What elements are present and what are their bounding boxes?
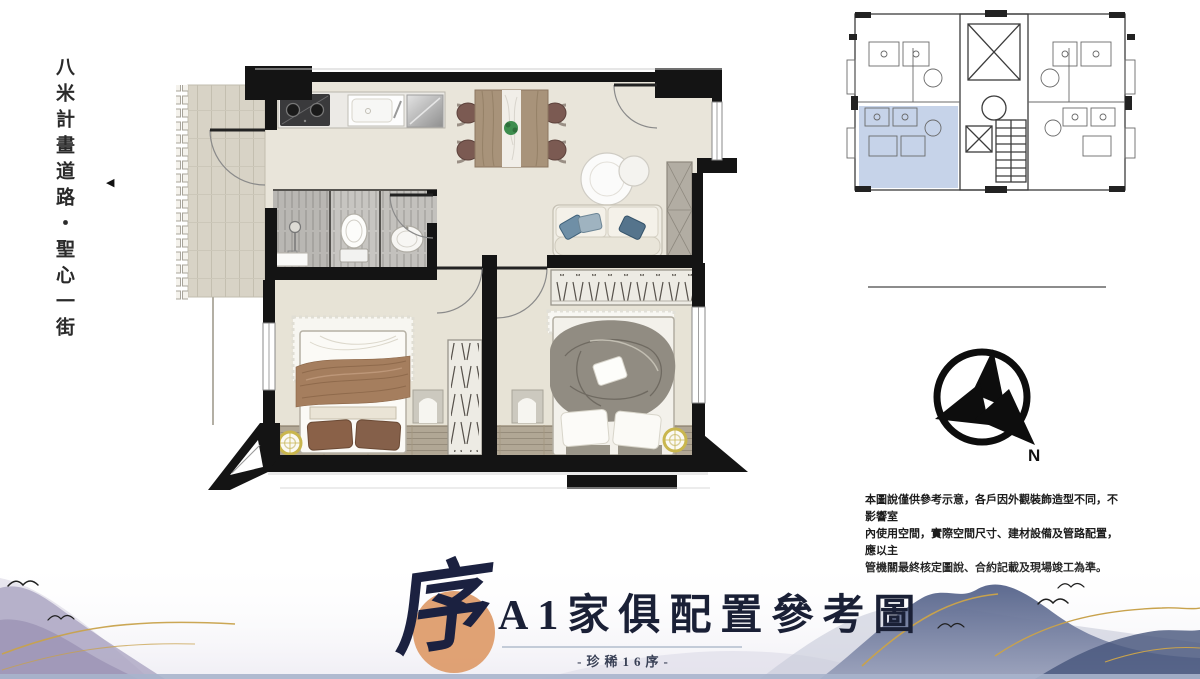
title-block: 序 A1家俱配置參考圖 -珍稀16序- xyxy=(0,556,1200,679)
balcony-railing xyxy=(176,85,188,301)
balcony xyxy=(176,85,265,425)
bedroom2-ceiling-light xyxy=(664,429,686,451)
bed-2 xyxy=(548,311,675,456)
floor-plan xyxy=(170,55,750,495)
bedroom2-wardrobe xyxy=(551,270,695,305)
window-bedroom1 xyxy=(263,323,275,390)
bed-1 xyxy=(293,317,413,453)
window-right-upper xyxy=(712,102,722,160)
bedroom2-nightstand xyxy=(512,390,543,423)
window-bedroom2 xyxy=(692,307,705,403)
vanity xyxy=(274,253,308,266)
bathroom xyxy=(273,190,437,267)
road-direction-arrow-icon: ◀ xyxy=(106,176,114,189)
disclaimer-line: 內使用空間，實際空間尺寸、建材設備及管路配置，應以主 xyxy=(865,526,1121,560)
bedroom1-nightstand xyxy=(413,390,443,423)
bedroom1-wardrobe xyxy=(448,340,482,455)
disclaimer-line: 本圖說僅供參考示意，各戶因外觀裝飾造型不同，不影響室 xyxy=(865,492,1121,526)
floorplan-poster: 八米計畫道路・聖心一街 ◀ xyxy=(0,0,1200,679)
seal-character: 序 xyxy=(384,556,491,663)
page-title: A1家俱配置參考圖 xyxy=(498,593,924,639)
compass-icon: N xyxy=(925,333,1060,473)
sofa xyxy=(553,205,662,257)
road-label: 八米計畫道路・聖心一街 xyxy=(50,57,77,357)
title-divider xyxy=(502,646,742,648)
toilet xyxy=(340,214,368,262)
sink xyxy=(348,95,404,126)
subtitle: -珍稀16序- xyxy=(500,651,750,670)
north-label: N xyxy=(1028,446,1040,465)
divider-line xyxy=(868,286,1106,288)
entry-cabinet xyxy=(667,162,692,257)
key-plan xyxy=(845,8,1175,203)
bedroom1-ceiling-light xyxy=(279,432,301,454)
